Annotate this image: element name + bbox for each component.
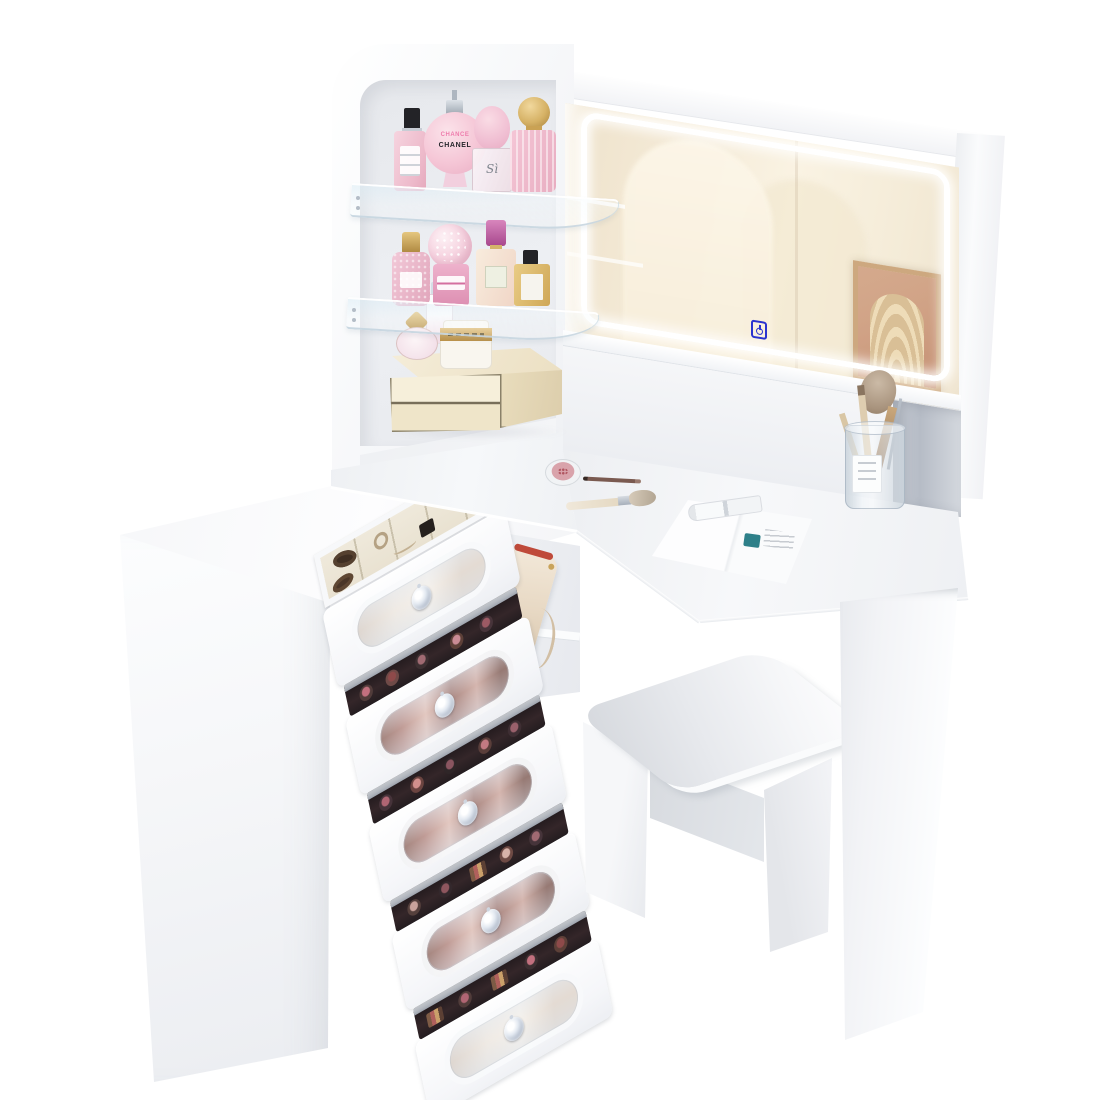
palette-item [426, 1006, 445, 1029]
cream-jar [440, 341, 492, 369]
bag-gold-clasp [548, 563, 555, 570]
palette-item [469, 860, 488, 883]
cabinet-front-panel [118, 535, 332, 1083]
desk-right-leg-panel [838, 588, 970, 1042]
perfume8-black-cap [523, 250, 538, 265]
scene: CHANCE CHANEL Sì [0, 0, 1100, 1100]
chain-item [393, 536, 417, 557]
lipstick-top [358, 682, 374, 704]
watch-item [333, 548, 357, 570]
perfume1-cap [404, 108, 420, 130]
lipstick-top [406, 896, 422, 918]
lipstick-top [553, 933, 569, 955]
watch-item-2 [331, 569, 355, 596]
lipstick-top [457, 988, 473, 1010]
lipstick-top [437, 878, 453, 900]
makeup-compact [545, 459, 581, 486]
lipstick-top [523, 950, 539, 972]
power-touch-icon[interactable] [751, 319, 767, 340]
lipstick-top [478, 613, 494, 635]
shelf-peg [352, 308, 356, 312]
lipstick-top [378, 792, 394, 814]
shelf-peg [352, 318, 356, 322]
lipstick-top [449, 630, 465, 652]
lipstick-top [498, 843, 514, 865]
palette-item [490, 969, 509, 992]
shelf-peg [356, 206, 360, 210]
magazine-photo [743, 533, 761, 548]
bangle-item [372, 529, 389, 553]
lipstick-top [506, 718, 522, 740]
ribbed-pink-bottle [510, 130, 556, 192]
perfume5-label [400, 272, 422, 288]
egg-perfume-top [474, 106, 510, 150]
lipstick-top [528, 826, 544, 848]
chanel-bottle-base [443, 172, 467, 187]
crystal-ball-cap [428, 224, 472, 268]
perfume5-gold-cap [402, 232, 420, 254]
gold-sphere-cap [518, 97, 550, 128]
stool-leg-right [762, 758, 832, 952]
perfume8-label [521, 274, 543, 300]
lipstick-top [384, 667, 400, 689]
lipstick-top [414, 650, 430, 672]
cup-label [852, 455, 882, 493]
si-perfume-bottle: Sì [472, 148, 512, 192]
perfume6-label [437, 276, 465, 290]
lipstick-top [442, 755, 458, 777]
lipstick-top [409, 774, 425, 796]
shelf-peg [356, 196, 360, 200]
black-jewelry-box-item [419, 518, 436, 539]
perfume7-label [485, 266, 507, 288]
magenta-cap [486, 220, 506, 246]
perfume1-label [400, 146, 420, 176]
lipstick-top [477, 735, 493, 757]
power-stem-glyph [759, 324, 761, 329]
jewelry-box-front [390, 374, 502, 432]
